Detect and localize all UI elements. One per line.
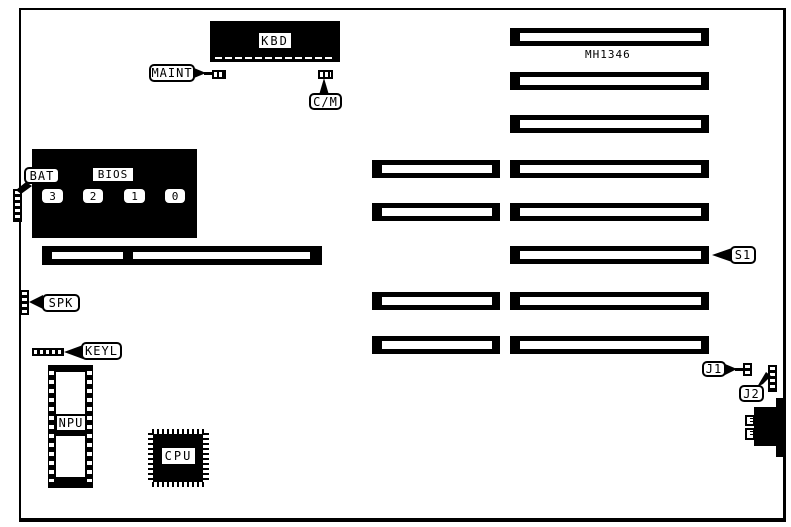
long-slot-3: [510, 115, 709, 133]
kbd-dashed-edge: [215, 57, 335, 59]
keyl-connector: [32, 348, 64, 356]
battery-connector: [13, 189, 22, 222]
short-slot-1: [372, 160, 500, 178]
bios-row-slot-channel-long: [133, 252, 310, 259]
cpu-pins-bottom: [152, 482, 204, 487]
spk-connector: [20, 290, 29, 315]
long-slot-1: [510, 28, 709, 46]
bios-chip-1: 1: [124, 189, 145, 203]
long-slot-2: [510, 72, 709, 90]
din-plug-top: [745, 415, 755, 426]
j1-callout: J1: [702, 361, 726, 377]
long-slot-5: [510, 203, 709, 221]
bios-chip-2: 2: [83, 189, 103, 203]
npu-socket-window-top: [56, 372, 85, 414]
long-slot-4: [510, 160, 709, 178]
spk-callout: SPK: [42, 294, 80, 312]
cm-callout: C/M: [309, 93, 342, 110]
maint-callout: MAINT: [149, 64, 195, 82]
j2-callout: J2: [739, 385, 764, 402]
npu-label: NPU: [55, 414, 87, 432]
din-plug-bottom: [745, 428, 755, 440]
j1-jumper: [743, 363, 752, 376]
din-plug-bottom-teeth: [750, 431, 753, 437]
long-slot-6-s1: [510, 246, 709, 264]
din-connector-body: [754, 407, 778, 446]
bios-chip-0: 0: [165, 189, 185, 203]
short-slot-3: [372, 292, 500, 310]
cm-jumper: [318, 70, 333, 79]
din-plug-top-teeth: [750, 418, 753, 423]
npu-socket-pins-left: [49, 371, 54, 482]
cpu-pins-right: [203, 433, 209, 483]
s1-callout: S1: [730, 246, 756, 264]
motherboard-diagram: KBD MAINT C/M BIOS 3 2 1 0 BAT SPK KEYL …: [0, 0, 791, 527]
bios-chip-3: 3: [42, 189, 63, 203]
j2-connector: [768, 365, 777, 392]
bios-label: BIOS: [93, 168, 133, 181]
short-slot-4: [372, 336, 500, 354]
bios-row-slot: [42, 246, 322, 265]
bat-callout: BAT: [24, 167, 60, 184]
npu-socket-window-bottom: [56, 436, 85, 477]
kbd-label: KBD: [259, 33, 291, 48]
bios-row-slot-channel-short: [52, 252, 123, 259]
short-slot-2: [372, 203, 500, 221]
keyl-callout: KEYL: [81, 342, 122, 360]
npu-socket-pins-right: [87, 371, 92, 482]
long-slot-8: [510, 336, 709, 354]
cpu-label: CPU: [162, 448, 195, 464]
long-slot-7: [510, 292, 709, 310]
board-model-text: MH1346: [585, 48, 631, 61]
maint-jumper: [212, 70, 226, 79]
